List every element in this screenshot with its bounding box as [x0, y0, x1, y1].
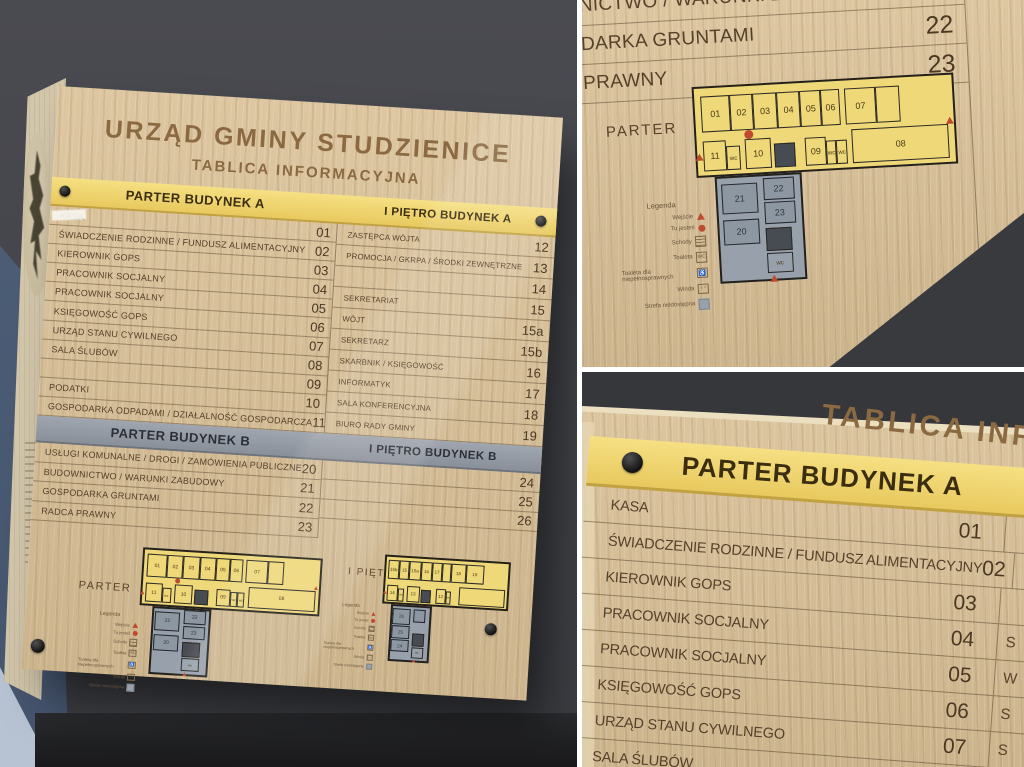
- plan-room: 02: [729, 94, 755, 131]
- plan-room-number: 22: [773, 183, 784, 194]
- plan-room: 09: [215, 588, 230, 606]
- legend-label: Toaleta: [354, 635, 366, 640]
- plan-room: 07: [844, 87, 877, 124]
- room-number: 02: [981, 556, 1014, 582]
- legend-label: Wejście: [115, 621, 130, 627]
- plan-room-number: wc: [164, 593, 168, 597]
- legend-title: Legenda: [326, 601, 376, 609]
- room-number: 06: [945, 698, 993, 725]
- room-number: 22: [298, 500, 313, 516]
- plan-room: 11: [145, 583, 162, 603]
- room-number: 06: [310, 319, 325, 335]
- room-number: 03: [313, 262, 328, 278]
- wc-room: wc: [836, 140, 848, 164]
- legend-label: Schody: [672, 239, 692, 246]
- gray-box-icon: [699, 298, 710, 309]
- photo-main-board: URZĄD GMINY STUDZIENICE TABLICA INFORMAC…: [0, 0, 577, 767]
- board-subtitle-fragment: TABLICA INFO: [820, 399, 1024, 457]
- plan-room-number: 23: [191, 630, 197, 636]
- entrance-triangle-icon: [945, 116, 953, 123]
- room-number: 17: [525, 385, 540, 401]
- wheelchair-icon: [367, 644, 374, 651]
- entrance-triangle-icon: [314, 586, 318, 590]
- room-number: 02: [315, 243, 330, 259]
- adjacent-column-fragment: W: [993, 660, 1024, 698]
- adjacent-column-fragment: [998, 588, 1024, 626]
- plan-room-number: 07: [855, 100, 866, 111]
- legend-item: Toaleta dla niepełnosprawnych: [78, 657, 137, 671]
- legend-pietro: LegendaWejścieTu jesteśSchodyToaletaToal…: [322, 601, 376, 673]
- plan-label-parter: PARTER: [605, 120, 677, 141]
- legend-label: Toaleta dla niepełnosprawnych: [622, 267, 694, 283]
- plan-room: [458, 587, 506, 608]
- room-label: [332, 489, 519, 501]
- plan-room-number: 04: [205, 566, 211, 572]
- plan-room-number: 17: [434, 570, 439, 575]
- griffin-silhouette: [28, 150, 46, 279]
- plan-room-number: 18: [456, 571, 461, 576]
- room-number: 23: [297, 519, 312, 535]
- room-number: 21: [923, 0, 959, 1]
- plan-room: 23: [764, 200, 797, 223]
- room-number: 22: [925, 10, 961, 41]
- plan-room-number: 24: [397, 643, 402, 648]
- plan-room: 23: [182, 626, 204, 641]
- header-parter-a: PARTER BUDYNEK A: [681, 451, 964, 503]
- room-number: 03: [953, 590, 1001, 617]
- plan-room-number: 14: [390, 590, 395, 595]
- plan-room-number: 02: [736, 107, 747, 118]
- stairs-room: [765, 226, 792, 251]
- room-label: [333, 470, 520, 482]
- room-number: 10: [305, 396, 320, 412]
- legend-item: Schody: [620, 236, 706, 252]
- plan-room-number: wc: [446, 596, 450, 600]
- legend-label: Strefa niedostępna: [89, 683, 124, 690]
- legend-item: Schody: [324, 623, 374, 633]
- plan-room: 21: [721, 183, 759, 215]
- legend-label: Strefa niedostępna: [645, 301, 696, 310]
- plan-room-number: wc: [399, 593, 403, 597]
- plan-room: 08: [248, 587, 316, 613]
- plan-room-number: 20: [163, 640, 169, 646]
- legend-item: Toaleta: [621, 251, 707, 267]
- legend-label: Wejście: [672, 214, 693, 221]
- plan-room: 22: [183, 610, 205, 625]
- plan-room-number: 19: [472, 572, 477, 577]
- you-are-here-dot-icon: [371, 619, 376, 624]
- tape-mark: [52, 209, 86, 220]
- room-number: 07: [942, 734, 990, 761]
- plan-room: 06: [820, 89, 840, 126]
- plan-room: 11: [702, 141, 727, 172]
- entrance-triangle-icon: [383, 590, 387, 593]
- floor-shadow: [35, 713, 577, 767]
- photo-crop-section-a: TABLICA INFO PARTER BUDYNEK A KASA01ŚWIA…: [582, 372, 1024, 767]
- room-number: 21: [300, 480, 315, 496]
- column-parter-a: KASA01ŚWIADCZENIE RODZINNE / FUNDUSZ ALI…: [37, 206, 338, 434]
- plan-room: [413, 609, 426, 622]
- room-number: 04: [950, 626, 998, 653]
- plan-room: 19: [465, 565, 484, 585]
- wc-room: wc: [237, 592, 245, 608]
- screw-icon: [621, 451, 643, 473]
- room-number: 14: [531, 281, 546, 297]
- crop-board-content: TABLICA INFO PARTER BUDYNEK A KASA01ŚWIA…: [582, 372, 1024, 767]
- plan-room-number: wc: [239, 598, 243, 602]
- wc-room: wc: [445, 591, 451, 604]
- legend-label: Toaleta: [673, 254, 693, 261]
- legend-title: Legenda: [81, 609, 139, 619]
- plan-room-number: 16: [424, 569, 429, 574]
- wc-room: wc: [726, 146, 740, 170]
- room-number: 01: [316, 224, 331, 240]
- wc-room: wc: [410, 647, 423, 658]
- plan-room: 05: [215, 558, 231, 582]
- plan-room-number: 06: [825, 102, 836, 113]
- stairs-room: [773, 143, 795, 168]
- gray-box-icon: [127, 684, 135, 692]
- plan-room-number: 06: [233, 568, 239, 574]
- legend-label: Schody: [354, 626, 366, 631]
- room-number: 26: [517, 513, 532, 529]
- legend-item: Winda: [77, 670, 135, 681]
- room-number: 16: [526, 364, 541, 380]
- plan-room: 24: [390, 639, 408, 653]
- room-number: 12: [534, 239, 549, 255]
- plan-room-number: wc: [415, 651, 419, 655]
- plan-room: 20: [153, 634, 179, 652]
- legend-item: Winda: [323, 652, 373, 662]
- legend-item: Strefa niedostępna: [623, 298, 709, 314]
- people-icon: [366, 654, 373, 661]
- plan-room: 21: [154, 611, 180, 631]
- room-number: 18: [523, 406, 538, 422]
- legend-item: Strefa niedostępna: [76, 681, 134, 692]
- plan-room-number: 02: [172, 564, 178, 570]
- plan-room-number: 15b: [390, 567, 398, 572]
- room-number: 25: [518, 494, 533, 510]
- legend-label: Winda: [113, 673, 125, 679]
- legend-item: Schody: [79, 635, 137, 646]
- plan-room-number: 03: [760, 105, 771, 116]
- plan-room-number: 05: [220, 567, 226, 573]
- legend-label: Winda: [354, 655, 364, 660]
- entrance-triangle-icon: [182, 672, 186, 676]
- plan-room-number: 01: [154, 563, 160, 569]
- plan-room: 10: [744, 138, 772, 169]
- legend-title: Legenda: [618, 199, 704, 213]
- entrance-triangle-icon: [140, 590, 144, 594]
- plan-room: 08: [851, 124, 950, 163]
- stairs-icon: [368, 625, 375, 632]
- plan-room: 03: [183, 556, 201, 580]
- plan-room-number: 20: [736, 227, 747, 238]
- plan-room-number: wc: [730, 154, 738, 161]
- room-number: 15a: [521, 322, 544, 338]
- room-number: 20: [301, 461, 316, 477]
- plan-room-number: 22: [192, 615, 198, 621]
- plan-room-number: 23: [775, 207, 786, 218]
- adjacent-column-fragment: [1003, 517, 1024, 555]
- legend-label: Toaleta dla niepełnosprawnych: [323, 641, 365, 652]
- screw-icon: [30, 638, 45, 653]
- plan-room: [267, 561, 285, 585]
- wc-room: wc: [181, 658, 200, 672]
- legend-item: Toaleta dla niepełnosprawnych: [622, 267, 709, 284]
- wc-icon: [367, 635, 374, 642]
- legend-item: Toaleta: [78, 646, 136, 657]
- plan-room: 07: [246, 560, 269, 584]
- plan-room: 03: [752, 92, 778, 129]
- legend-label: Tu jesteś: [113, 629, 130, 635]
- plan-room-number: 11: [710, 151, 720, 162]
- adjacent-column-fragment: S: [990, 696, 1024, 734]
- plan-room: 05: [799, 90, 822, 127]
- floor-plans-area: PARTER LegendaWejścieTu jesteśSchodyToal…: [21, 520, 536, 704]
- wc-room: wc: [161, 588, 171, 604]
- entrance-triangle-icon: [770, 275, 778, 282]
- legend-parter: LegendaWejścieTu jesteśSchodyToaletaToal…: [76, 609, 139, 694]
- legend-label: Winda: [677, 286, 694, 293]
- floor-plan-parter: 0102030405060711wc1009wcwc0821222320wc: [692, 72, 965, 284]
- plan-room-number: wc: [828, 149, 836, 156]
- legend-label: Strefa niedostępna: [333, 663, 363, 669]
- legend-label: Tu jesteś: [670, 225, 694, 232]
- room-number: 05: [947, 662, 995, 689]
- legend-item: Toaleta dla niepełnosprawnych: [323, 641, 373, 652]
- adjacent-column-fragment: S: [988, 732, 1024, 767]
- entrance-triangle-icon: [371, 612, 375, 616]
- plan-room-number: 05: [806, 103, 817, 114]
- legend-item: Winda: [623, 283, 709, 299]
- plan-room-number: 13: [410, 591, 415, 596]
- plan-room: 20: [723, 218, 761, 246]
- stairs-room: [181, 642, 200, 658]
- room-number: 11: [312, 415, 326, 431]
- plan-room-number: 21: [734, 193, 745, 204]
- legend-item: Wejście: [80, 619, 138, 628]
- room-number: 04: [312, 281, 327, 297]
- plan-room-number: 12: [438, 594, 443, 599]
- column-pietro-b: 242526: [320, 460, 541, 532]
- plan-room-number: wc: [838, 148, 846, 155]
- plan-room: 25: [391, 625, 409, 639]
- plan-room-number: 09: [811, 146, 822, 157]
- plan-room: 26: [392, 608, 411, 625]
- entrance-triangle-icon: [411, 659, 415, 662]
- plan-room-number: 15: [402, 568, 407, 573]
- plan-room-number: 04: [783, 104, 794, 115]
- legend-item: Wejście: [619, 213, 705, 225]
- plan-room-number: wc: [231, 598, 235, 602]
- floor-plan-parter: 0102030405060711wc1009wcwc0821222320wc: [135, 547, 323, 684]
- room-number: 09: [306, 377, 321, 393]
- room-number: 24: [519, 474, 534, 490]
- entrance-triangle-icon: [695, 154, 703, 161]
- legend-label: Toaleta: [113, 650, 127, 656]
- plan-room-number: 08: [895, 139, 906, 150]
- you-are-here-dot-icon: [744, 129, 753, 138]
- gray-box-icon: [365, 663, 372, 670]
- plan-room: [875, 85, 901, 122]
- plan-room: 04: [199, 557, 217, 581]
- room-number: 01: [958, 519, 1006, 546]
- plan-room: 01: [700, 95, 731, 132]
- plan-room: 18: [450, 564, 466, 584]
- wc-room: wc: [397, 588, 404, 601]
- legend-item: Toaleta: [324, 632, 374, 642]
- legend-label: Toaleta dla niepełnosprawnych: [78, 657, 126, 670]
- legend-item: Tu jesteś: [80, 627, 138, 636]
- stairs-room: [420, 590, 431, 603]
- legend-item: Strefa niedostępna: [322, 661, 372, 671]
- plan-room: 09: [805, 137, 827, 166]
- plan-room: 02: [167, 555, 185, 579]
- plan-room: 01: [147, 554, 168, 578]
- plan-room-number: wc: [188, 663, 192, 667]
- plan-room-number: 10: [753, 148, 764, 159]
- room-number: 15b: [520, 343, 543, 359]
- room-label: [330, 509, 517, 521]
- directory-section-a: KASA01ŚWIADCZENIE RODZINNE / FUNDUSZ ALI…: [37, 206, 555, 447]
- plan-room-number: 26: [399, 614, 404, 619]
- wc-room: wc: [766, 252, 793, 273]
- legend-label: Schody: [113, 639, 127, 645]
- room-number: 05: [311, 300, 326, 316]
- room-number: 15: [530, 302, 545, 318]
- plan-room: 06: [229, 559, 243, 582]
- plan-room-number: 21: [164, 618, 170, 624]
- plan-room: 13: [406, 586, 420, 603]
- legend-item: Wejście: [325, 609, 375, 616]
- stairs-room: [411, 634, 424, 647]
- column-pietro-a: ZASTĘPCA WÓJTA12PROMOCJA / GKRPA / ŚRODK…: [325, 224, 555, 447]
- legend-item: Tu jesteś: [325, 616, 375, 623]
- legend-item: Tu jesteś: [619, 224, 705, 236]
- plan-room: 22: [762, 177, 795, 200]
- adjacent-column-fragment: S: [995, 624, 1024, 662]
- plan-room-number: 11: [151, 590, 157, 596]
- stairs-room: [194, 590, 209, 606]
- plan-room-number: 07: [254, 569, 260, 575]
- plan-room-number: 25: [398, 629, 403, 634]
- photo-crop-building-b: NICTWO / WARUNKI ZABUDOWY21DARKA GRUNTAM…: [582, 0, 1024, 367]
- plan-room-number: 08: [279, 596, 285, 602]
- people-icon: [127, 673, 135, 681]
- legend-label: Tu jesteś: [354, 618, 369, 623]
- room-number: 19: [522, 427, 537, 443]
- information-board: URZĄD GMINY STUDZIENICE TABLICA INFORMAC…: [21, 86, 563, 701]
- plan-room-number: wc: [776, 259, 784, 266]
- plan-room-number: 09: [220, 595, 226, 601]
- plan-room: 04: [776, 91, 802, 128]
- room-label: [345, 276, 532, 288]
- room-number: 08: [307, 357, 322, 373]
- plan-room-number: 03: [189, 565, 195, 571]
- plan-room: 10: [174, 585, 193, 605]
- plan-room-number: 01: [710, 108, 721, 119]
- legend-parter: LegendaWejścieTu jesteśSchodyToaletaToal…: [618, 199, 710, 319]
- floor-plan-pietro: 15b1515a1617181914wc1312wc262524wc: [379, 554, 511, 668]
- photo-collage: URZĄD GMINY STUDZIENICE TABLICA INFORMAC…: [0, 0, 1024, 767]
- directory-rows: KASA01ŚWIADCZENIE RODZINNE / FUNDUSZ ALI…: [582, 486, 1024, 767]
- legend-label: Wejście: [357, 611, 370, 616]
- room-number: 13: [533, 260, 548, 276]
- plan-room-number: 10: [181, 591, 187, 597]
- adjacent-column-fragment: [1012, 553, 1024, 590]
- plan-label-parter: PARTER: [78, 579, 131, 594]
- plan-room-number: 15a: [411, 568, 419, 573]
- room-number: 07: [309, 338, 324, 354]
